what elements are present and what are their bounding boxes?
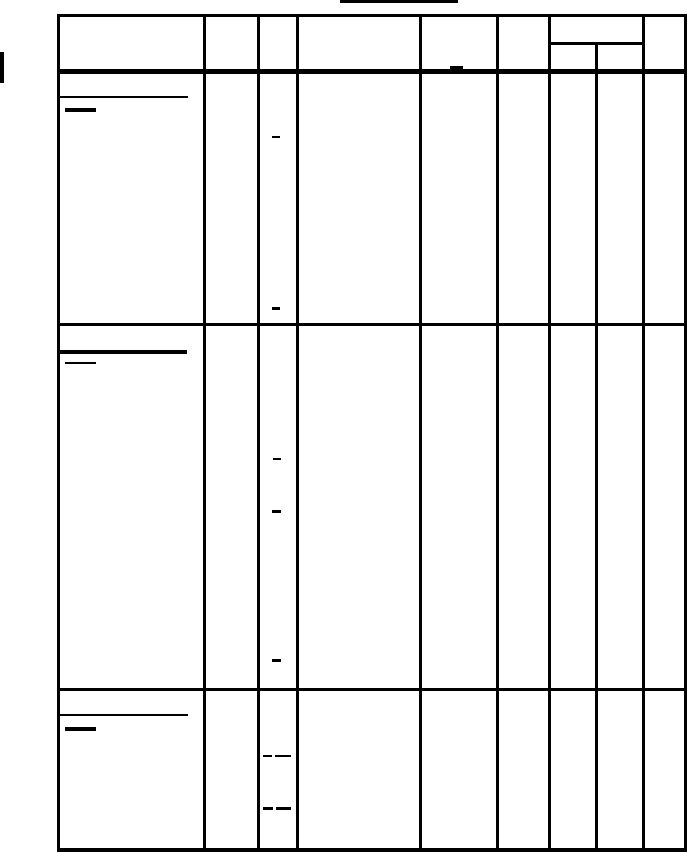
row1-long-underline-mark — [59, 96, 188, 98]
left-margin-bar — [0, 52, 4, 83]
page-title-underline — [340, 0, 458, 3]
border-top-line — [57, 14, 687, 17]
col-line-7-sub-line — [595, 43, 598, 851]
col-line-2-line — [257, 14, 260, 851]
border-right-line — [684, 14, 687, 852]
col-line-5-line — [496, 14, 499, 851]
row1-short-underline-mark — [65, 108, 96, 112]
header-col5-dash-mark — [450, 66, 463, 69]
border-left-line — [57, 14, 60, 852]
row1-col3-dash-a-mark — [272, 136, 280, 138]
row3-short-underline-mark — [65, 727, 96, 731]
row1-separator-line — [57, 323, 687, 326]
row2-short-underline-mark — [65, 362, 96, 364]
row2-col3-dash-c-mark — [272, 659, 281, 662]
scanned-document-page — [0, 0, 688, 853]
row3-col3-dash-pair2-b-mark — [276, 807, 291, 810]
row3-long-underline-mark — [59, 714, 188, 716]
col-line-8-line — [642, 14, 645, 851]
row3-col3-dash-pair1-a-mark — [263, 755, 272, 757]
header-subsplit-line — [548, 42, 645, 45]
border-bottom-line — [57, 848, 687, 852]
col-line-4-line — [419, 14, 422, 851]
row3-col3-dash-pair2-a-mark — [263, 807, 273, 810]
col-line-3-line — [296, 14, 299, 851]
col-line-1-line — [203, 14, 206, 851]
row3-col3-dash-pair1-b-mark — [275, 755, 291, 757]
row2-long-underline-mark — [58, 350, 187, 354]
row1-col3-dash-b-mark — [272, 307, 280, 310]
col-line-6-line — [548, 14, 551, 851]
header-bottom-thick-line — [57, 69, 687, 74]
row2-separator-line — [57, 688, 687, 691]
row2-col3-dash-b-mark — [272, 510, 281, 513]
row2-col3-dash-a-mark — [273, 458, 281, 460]
